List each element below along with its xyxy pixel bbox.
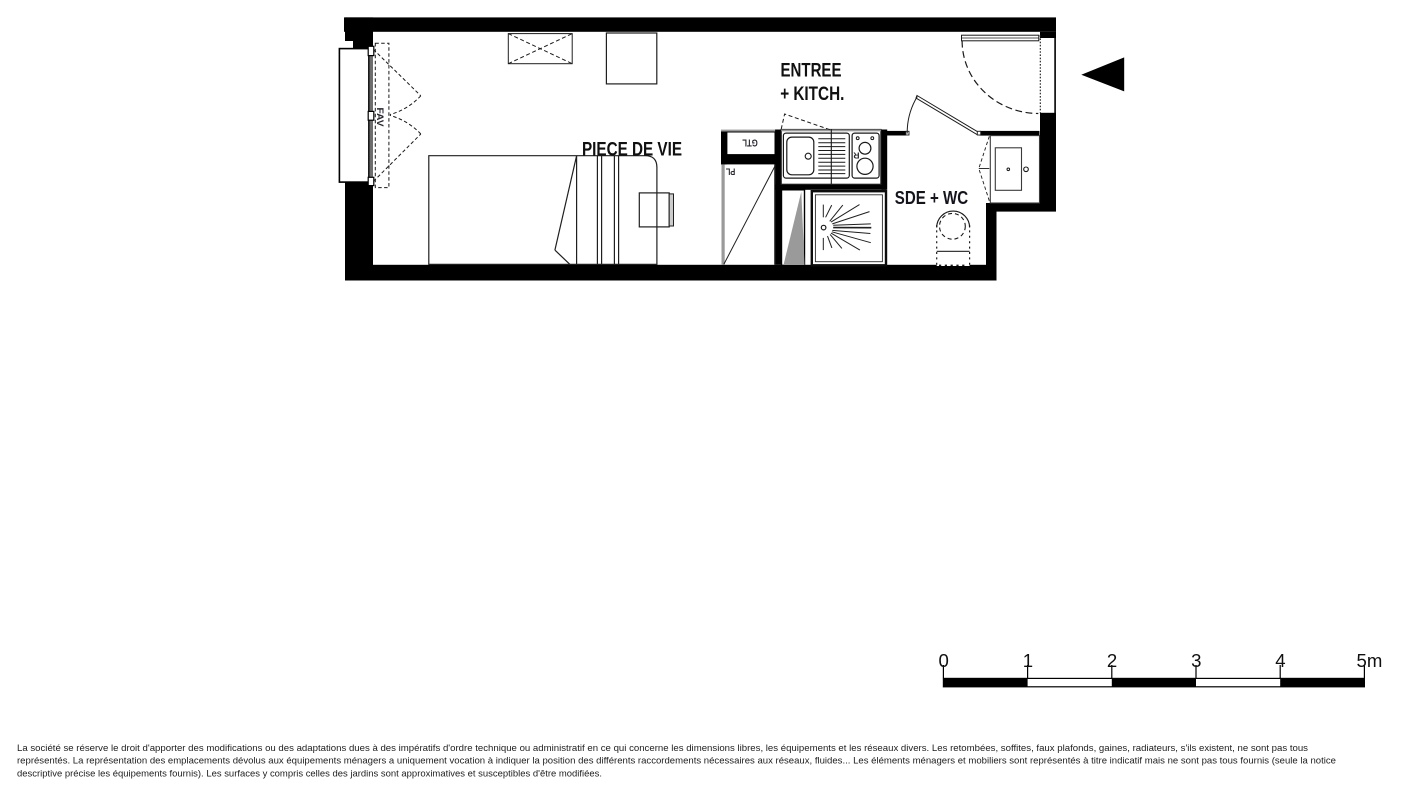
svg-text:FAV: FAV bbox=[375, 108, 386, 128]
svg-text:4: 4 bbox=[1275, 650, 1285, 671]
svg-text:descriptive précise les équipe: descriptive précise les équipements four… bbox=[17, 768, 602, 779]
svg-text:2: 2 bbox=[1107, 650, 1117, 671]
svg-text:1: 1 bbox=[1023, 650, 1033, 671]
svg-text:représentés. La représentation: représentés. La représentation des empla… bbox=[17, 756, 1336, 767]
svg-text:PIECE DE VIE: PIECE DE VIE bbox=[582, 139, 682, 160]
svg-text:+ KITCH.: + KITCH. bbox=[780, 83, 844, 105]
svg-text:ENTREE: ENTREE bbox=[781, 59, 842, 81]
svg-text:La société se réserve le droit: La société se réserve le droit d'apporte… bbox=[17, 743, 1308, 754]
svg-text:0: 0 bbox=[939, 650, 949, 671]
svg-text:3: 3 bbox=[1191, 650, 1201, 671]
svg-text:SDE + WC: SDE + WC bbox=[895, 188, 968, 208]
svg-text:GTL: GTL bbox=[742, 137, 758, 148]
svg-text:5m: 5m bbox=[1357, 650, 1383, 671]
svg-text:PL: PL bbox=[726, 167, 736, 178]
svg-text:R: R bbox=[853, 151, 859, 161]
